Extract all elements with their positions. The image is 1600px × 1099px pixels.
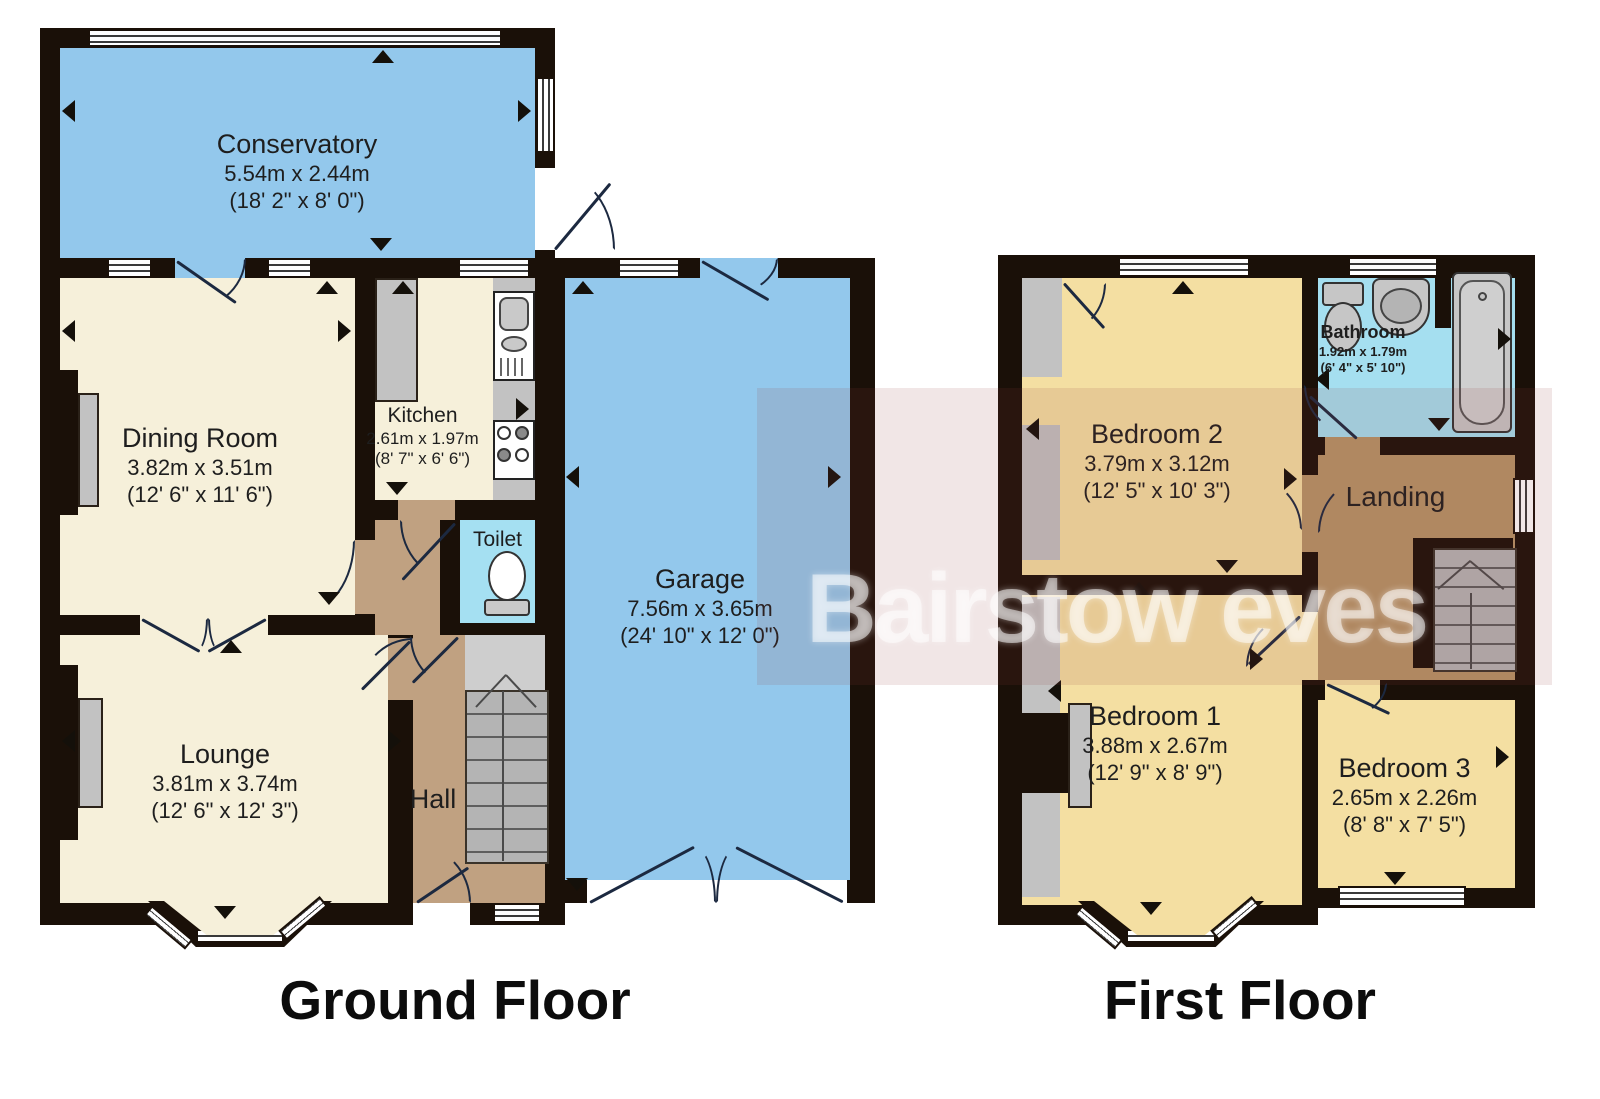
window	[536, 77, 555, 153]
room-dims-imperial: (6' 4" x 5' 10")	[1288, 360, 1438, 376]
room-name: Toilet	[455, 527, 540, 553]
view-arrow-icon	[516, 398, 529, 420]
room-dims-imperial: (8' 7" x 6' 6")	[355, 449, 490, 470]
front-door-opening	[413, 903, 470, 925]
view-arrow-icon	[392, 281, 414, 294]
view-arrow-icon	[1128, 582, 1150, 595]
window	[88, 29, 502, 47]
room-label-kitchen: Kitchen 2.61m x 1.97m (8' 7" x 6' 6")	[355, 403, 490, 470]
wall-segment	[1435, 278, 1451, 328]
room-label-landing: Landing	[1318, 480, 1473, 514]
room-dims-metric: 3.81m x 3.74m	[60, 771, 390, 798]
view-arrow-icon	[1172, 281, 1194, 294]
window	[1118, 257, 1250, 277]
view-arrow-icon	[386, 482, 408, 495]
view-arrow-icon	[1250, 648, 1263, 670]
room-dims-metric: 2.61m x 1.97m	[355, 429, 490, 450]
view-arrow-icon	[566, 878, 588, 891]
sink-drainer-lines	[500, 358, 528, 376]
view-arrow-icon	[572, 281, 594, 294]
room-label-lounge: Lounge 3.81m x 3.74m (12' 6" x 12' 3")	[60, 738, 390, 825]
room-name: Bedroom 3	[1262, 752, 1547, 785]
room-name: Hall	[383, 783, 483, 816]
view-arrow-icon	[338, 320, 351, 342]
window	[107, 258, 152, 278]
room-label-bedroom1: Bedroom 1 3.88m x 2.67m (12' 9" x 8' 9")	[1010, 700, 1300, 787]
hob-burner	[515, 448, 529, 462]
toilet-bowl-icon	[488, 551, 526, 601]
stair-center-line	[502, 691, 504, 861]
hob-burner	[515, 426, 529, 440]
room-label-bedroom2: Bedroom 2 3.79m x 3.12m (12' 5" x 10' 3"…	[1012, 418, 1302, 505]
room-name: Conservatory	[97, 128, 497, 161]
room-dims-metric: 3.88m x 2.67m	[1010, 733, 1300, 760]
room-label-bathroom: Bathroom 1.92m x 1.79m (6' 4" x 5' 10")	[1288, 322, 1438, 376]
wardrobe	[1022, 278, 1062, 377]
room-dims-metric: 1.92m x 1.79m	[1288, 344, 1438, 360]
stair-center-line	[1470, 593, 1472, 669]
room-label-dining: Dining Room 3.82m x 3.51m (12' 6" x 11' …	[55, 422, 345, 509]
sink-bowl	[499, 297, 529, 331]
view-arrow-icon	[1048, 680, 1061, 702]
view-arrow-icon	[62, 100, 75, 122]
view-arrow-icon	[828, 466, 841, 488]
window	[1513, 478, 1535, 534]
door-opening	[1302, 475, 1318, 552]
staircase	[465, 690, 549, 864]
room-dims-metric: 5.54m x 2.44m	[97, 161, 497, 188]
view-arrow-icon	[1140, 902, 1162, 915]
view-arrow-icon	[220, 640, 242, 653]
view-arrow-icon	[518, 100, 531, 122]
room-name: Kitchen	[355, 403, 490, 429]
room-dims-imperial: (12' 5" x 10' 3")	[1012, 478, 1302, 505]
view-arrow-icon	[214, 906, 236, 919]
window	[618, 258, 680, 278]
room-name: Garage	[550, 563, 850, 596]
room-name: Bedroom 1	[1010, 700, 1300, 733]
view-arrow-icon	[566, 466, 579, 488]
door-opening	[398, 500, 455, 520]
view-arrow-icon	[370, 238, 392, 251]
room-dims-imperial: (24' 10" x 12' 0")	[550, 623, 850, 650]
room-dims-imperial: (8' 8" x 7' 5")	[1262, 812, 1547, 839]
window	[1348, 257, 1438, 277]
alcove	[1022, 793, 1060, 897]
view-arrow-icon	[1428, 418, 1450, 431]
room-name: Lounge	[60, 738, 390, 771]
floorplan-canvas: Conservatory 5.54m x 2.44m (18' 2" x 8' …	[0, 0, 1600, 1099]
room-dims-imperial: (18' 2" x 8' 0")	[97, 188, 497, 215]
door-opening	[355, 540, 375, 614]
hob-burner	[497, 448, 511, 462]
room-dims-metric: 3.82m x 3.51m	[55, 455, 345, 482]
window	[458, 258, 530, 278]
window	[493, 903, 541, 923]
kitchen-worktop	[375, 278, 418, 402]
room-dims-metric: 2.65m x 2.26m	[1262, 785, 1547, 812]
window	[1338, 886, 1466, 907]
door-opening	[1302, 612, 1318, 680]
view-arrow-icon	[1498, 328, 1511, 350]
room-label-hall: Hall	[383, 783, 483, 816]
door-opening	[1325, 437, 1380, 457]
room-label-garage: Garage 7.56m x 3.65m (24' 10" x 12' 0")	[550, 563, 850, 650]
view-arrow-icon	[318, 592, 340, 605]
room-label-conservatory: Conservatory 5.54m x 2.44m (18' 2" x 8' …	[97, 128, 497, 215]
hob-burner	[497, 426, 511, 440]
room-name: Landing	[1318, 480, 1473, 514]
room-dims-metric: 3.79m x 3.12m	[1012, 451, 1302, 478]
first-floor-title: First Floor	[990, 968, 1490, 1032]
room-dims-imperial: (12' 6" x 12' 3")	[60, 798, 390, 825]
stair-wall	[1413, 538, 1513, 548]
basin-bowl	[1380, 288, 1422, 324]
room-name: Bedroom 2	[1012, 418, 1302, 451]
view-arrow-icon	[62, 320, 75, 342]
room-dims-imperial: (12' 9" x 8' 9")	[1010, 760, 1300, 787]
view-arrow-icon	[372, 50, 394, 63]
room-name: Dining Room	[55, 422, 345, 455]
room-dims-imperial: (12' 6" x 11' 6")	[55, 482, 345, 509]
door-opening	[535, 168, 555, 250]
view-arrow-icon	[1216, 560, 1238, 573]
bathtub-drain	[1478, 292, 1487, 301]
bathtub-inner	[1459, 280, 1505, 425]
room-label-toilet: Toilet	[455, 527, 540, 553]
stair-wall	[1413, 538, 1433, 668]
sink-drainer-bowl	[501, 336, 527, 352]
view-arrow-icon	[316, 281, 338, 294]
view-arrow-icon	[1384, 872, 1406, 885]
room-name: Bathroom	[1288, 322, 1438, 344]
toilet-cistern-icon	[484, 599, 530, 616]
room-dims-metric: 7.56m x 3.65m	[550, 596, 850, 623]
window	[267, 258, 312, 278]
ground-floor-title: Ground Floor	[205, 968, 705, 1032]
room-label-bedroom3: Bedroom 3 2.65m x 2.26m (8' 8" x 7' 5")	[1262, 752, 1547, 839]
stair-landing	[465, 635, 545, 690]
